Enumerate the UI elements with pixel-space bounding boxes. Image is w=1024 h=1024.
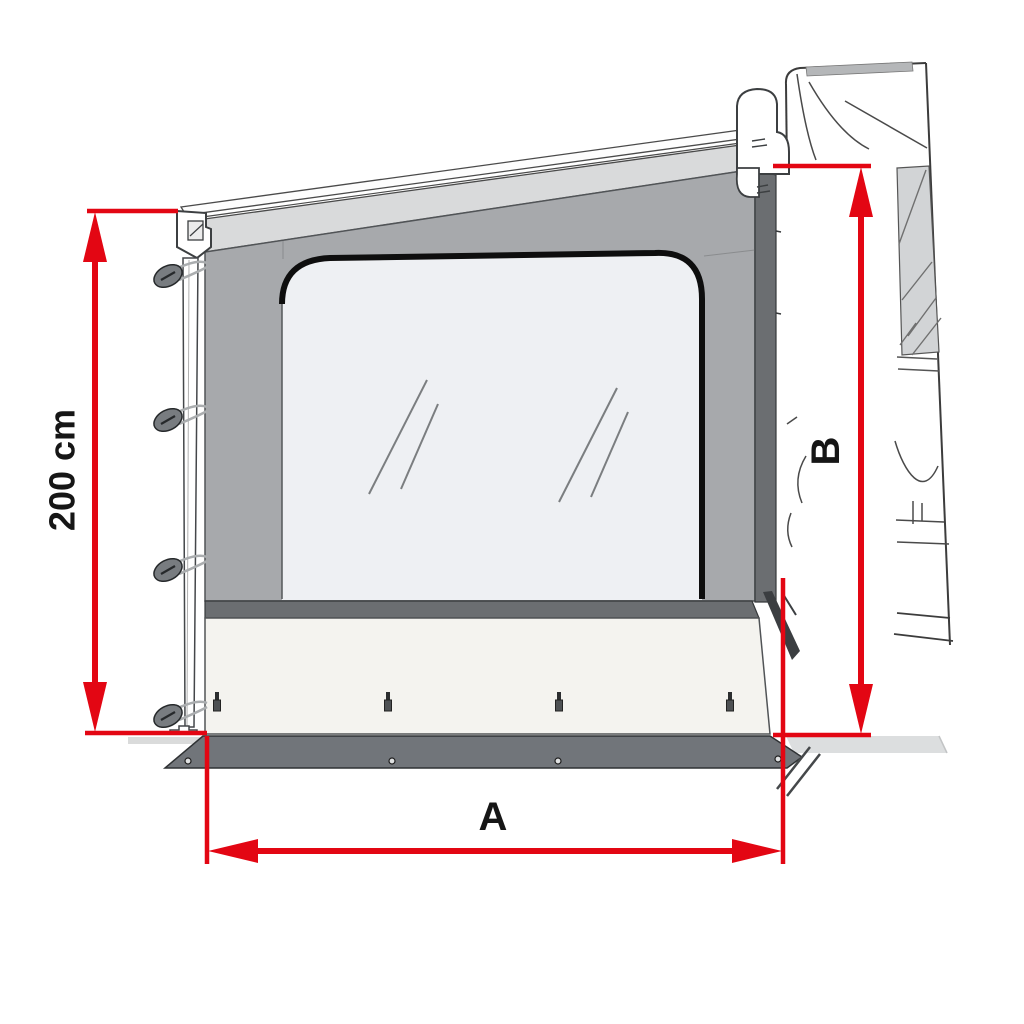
van-right-edge [926,63,950,645]
panel-window [282,253,702,600]
flap-hole [555,758,561,764]
attachment-height-label: B [804,437,848,466]
width-dimension-label: A [479,795,508,839]
knob-fasteners [150,260,207,732]
arrowhead-down [849,684,873,734]
arrowhead-right [732,839,782,863]
pole-leg [183,258,198,727]
arrowhead-up [83,212,107,262]
flap-hole [775,756,781,762]
van-bottom-sill [894,613,953,641]
vehicle-wall [786,62,953,645]
case-bracket-body [737,89,789,174]
ground-shadow-left [128,737,204,744]
dimension-height-200cm: 200 cm [42,211,208,733]
panel-bottom-rail [205,601,759,618]
arrowhead-up [849,167,873,217]
knob-fastener [150,404,207,436]
van-roof-band [806,62,913,76]
window-glass [282,253,702,600]
van-window [897,166,939,355]
panel-rear-trim [755,170,776,602]
awning-side-panel-diagram: 200 cm B A [0,0,1024,1024]
panel-skirt [205,618,770,734]
arrowhead-down [83,682,107,732]
flap-hole [389,758,395,764]
ground-strip-right [786,736,947,753]
flap-hole [185,758,191,764]
trim-notches [776,231,781,314]
knob-fastener [150,554,207,586]
case-bracket-knuckle [737,168,759,197]
height-dimension-label: 200 cm [42,409,83,531]
ground-flap [165,736,802,768]
diagram-canvas: 200 cm B A [0,0,1024,1024]
front-support-pole [150,211,211,734]
arrowhead-left [208,839,258,863]
van-window-sill [897,357,939,371]
